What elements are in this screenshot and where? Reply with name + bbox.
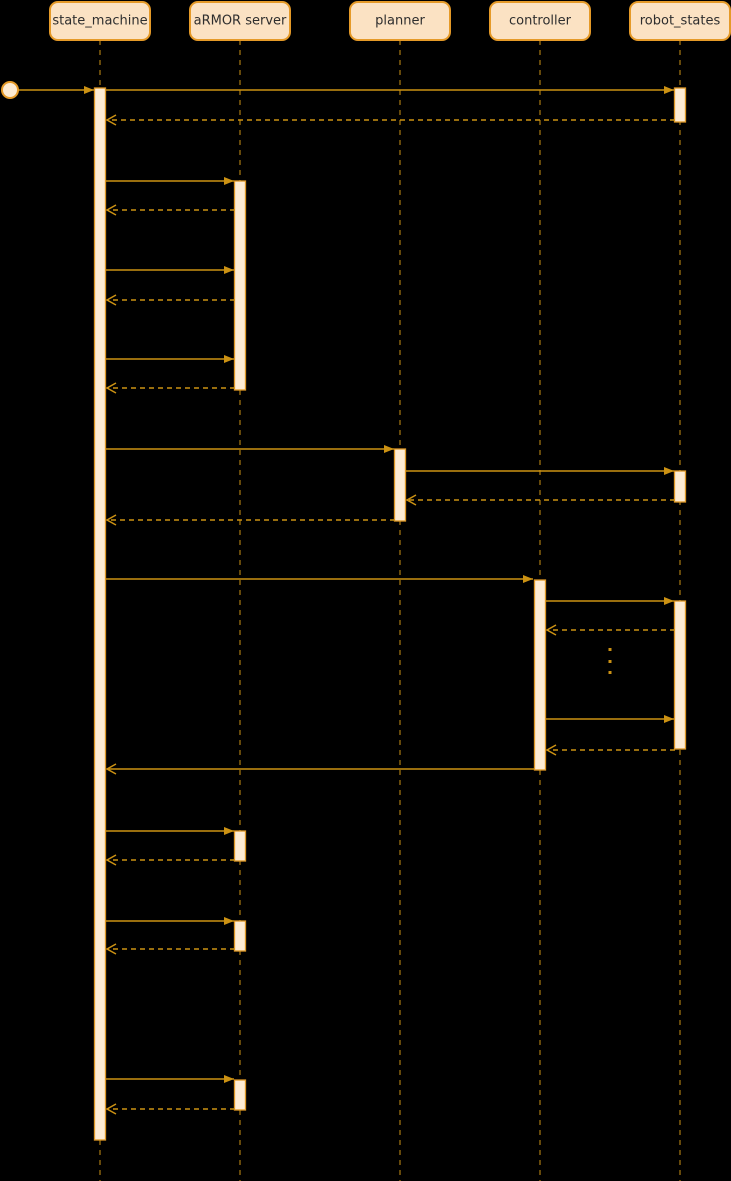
arrowhead-state-machine-to-armor-5	[224, 917, 234, 925]
participant-label-robot-states: robot_states	[640, 14, 721, 29]
ellipsis-dot-1	[609, 648, 612, 651]
sequence-diagram-svg: state_machineaRMOR serverplannercontroll…	[0, 0, 731, 1181]
armor-server-activation-2	[235, 831, 246, 861]
arrowhead-state-machine-to-planner	[384, 445, 394, 453]
armor-server-activation-4	[235, 1080, 246, 1110]
planner-activation-1	[395, 449, 406, 521]
arrowhead-state-machine-to-armor-2	[224, 266, 234, 274]
arrowhead-start-to-state-machine	[84, 86, 94, 94]
arrowhead-state-machine-to-armor-3	[224, 355, 234, 363]
start-circle	[2, 82, 18, 98]
robot-states-activation-2	[675, 471, 686, 502]
robot-states-activation-1	[675, 88, 686, 122]
arrowhead-planner-to-robot-states	[664, 467, 674, 475]
controller-activation-1	[535, 580, 546, 770]
participant-label-state-machine: state_machine	[52, 14, 147, 29]
ellipsis-dot-3	[609, 671, 612, 674]
state-machine-activation	[95, 88, 106, 1140]
arrowhead-controller-to-robot-states-1	[664, 597, 674, 605]
participant-label-controller: controller	[509, 14, 572, 29]
armor-server-activation-1	[235, 181, 246, 390]
arrowhead-state-machine-to-armor-4	[224, 827, 234, 835]
participant-label-armor-server: aRMOR server	[194, 14, 287, 29]
arrowhead-state-machine-to-armor-1	[224, 177, 234, 185]
robot-states-activation-3	[675, 601, 686, 749]
participant-label-planner: planner	[375, 14, 425, 29]
ellipsis-dot-2	[609, 660, 612, 663]
sequence-diagram: state_machineaRMOR serverplannercontroll…	[0, 0, 731, 1181]
arrowhead-state-machine-to-robot-states	[664, 86, 674, 94]
arrowhead-state-machine-to-controller	[523, 575, 533, 583]
armor-server-activation-3	[235, 921, 246, 951]
arrowhead-state-machine-to-armor-6	[224, 1075, 234, 1083]
arrowhead-controller-to-robot-states-2	[664, 715, 674, 723]
